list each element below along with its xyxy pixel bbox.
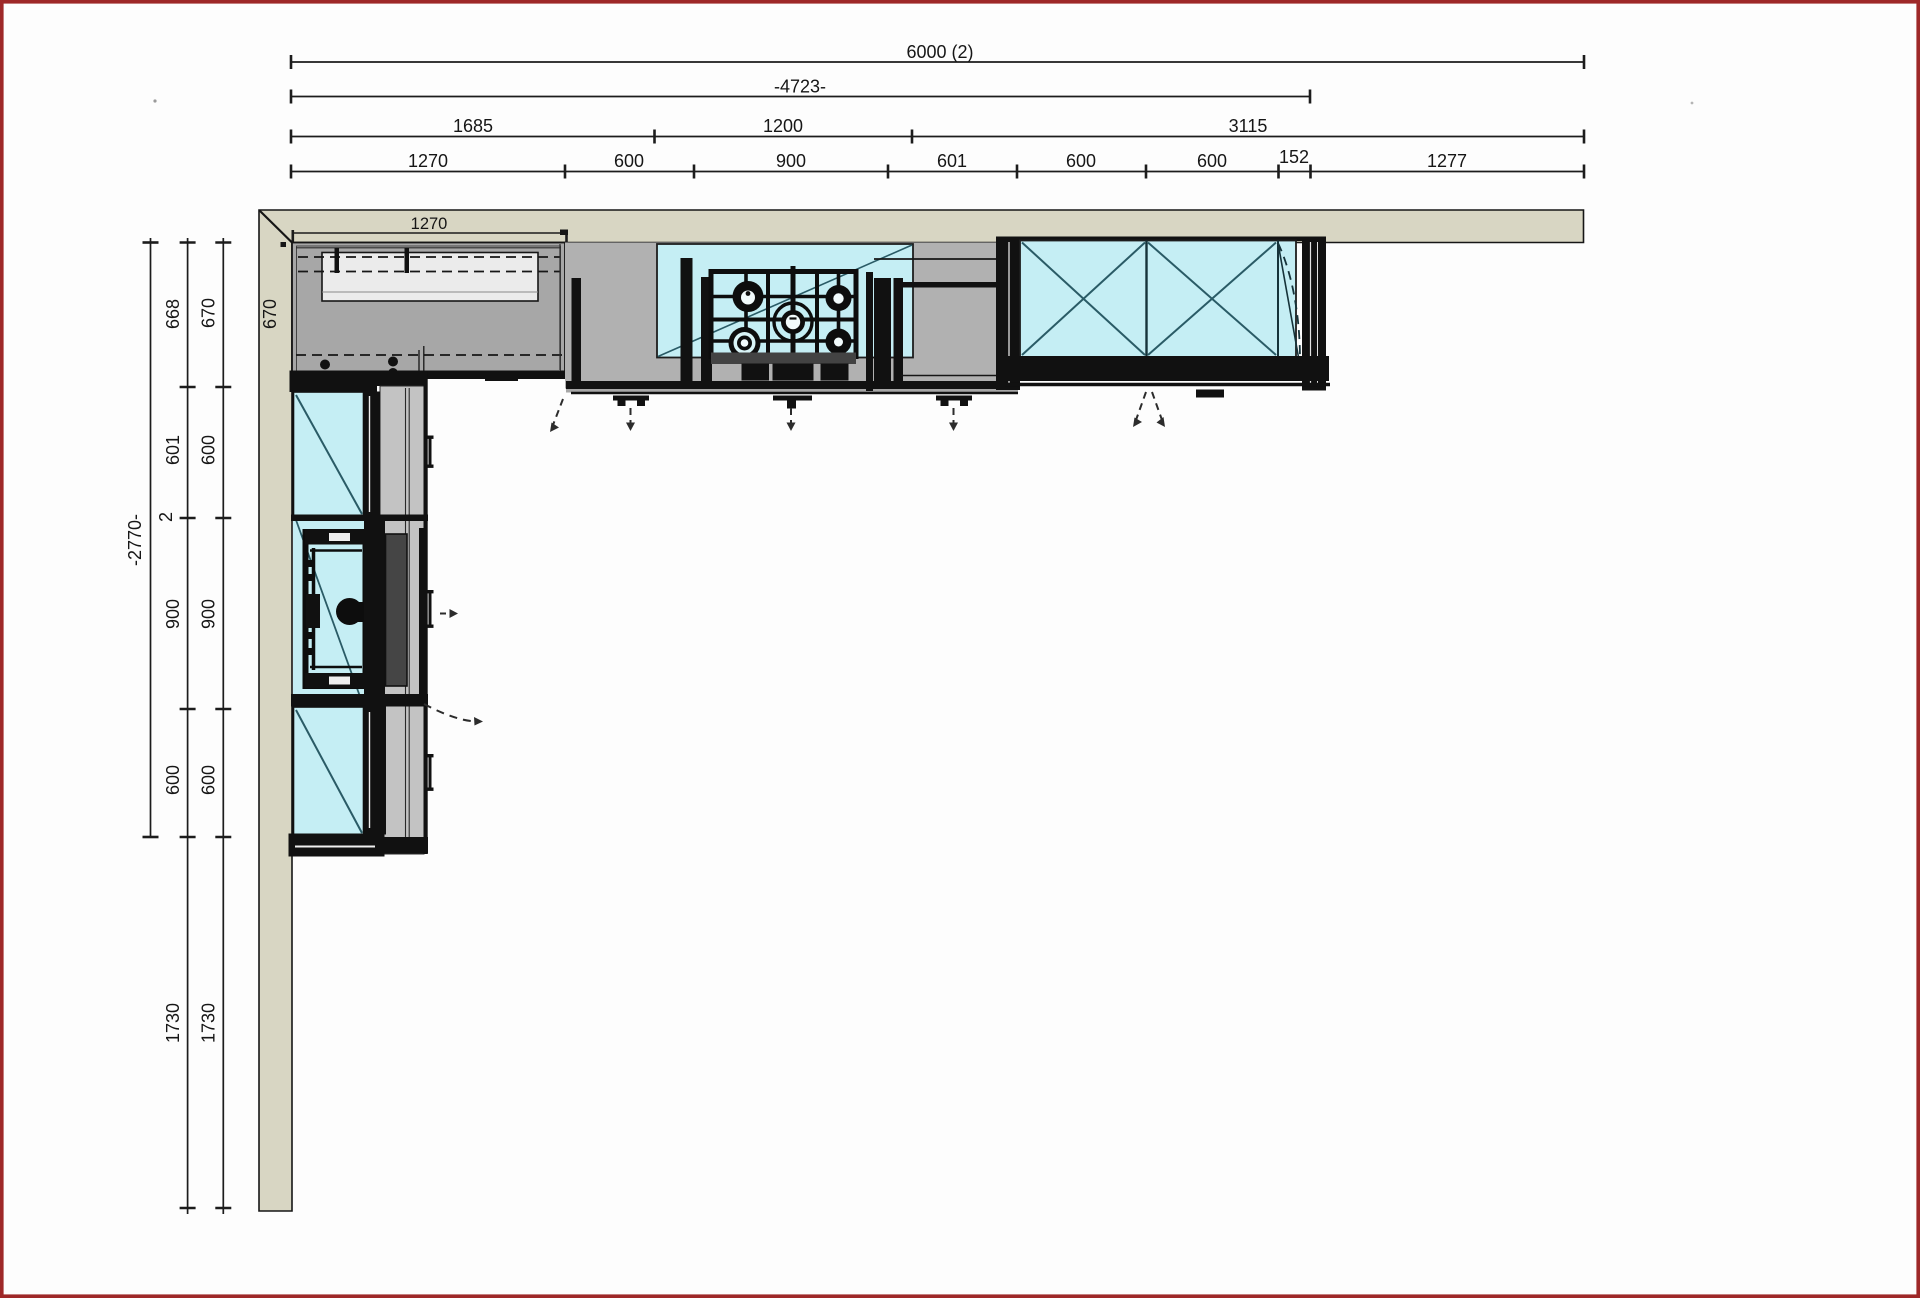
svg-text:1270: 1270 [408,151,448,171]
svg-text:152: 152 [1279,147,1309,167]
svg-text:600: 600 [163,765,183,795]
svg-text:670: 670 [260,299,280,329]
svg-text:1730: 1730 [199,1003,219,1043]
svg-text:-4723-: -4723- [774,77,826,97]
svg-text:-2770-: -2770- [125,514,145,566]
svg-text:600: 600 [614,151,644,171]
svg-text:900: 900 [776,151,806,171]
svg-text:600: 600 [1066,151,1096,171]
svg-text:3115: 3115 [1229,116,1268,136]
svg-text:601: 601 [163,435,183,465]
svg-text:601: 601 [937,151,967,171]
svg-text:1200: 1200 [763,116,803,136]
svg-text:668: 668 [163,299,183,329]
svg-text:2: 2 [156,512,176,522]
svg-text:900: 900 [199,599,219,629]
svg-text:6000 (2): 6000 (2) [906,42,973,62]
svg-text:1277: 1277 [1427,151,1467,171]
svg-text:600: 600 [199,765,219,795]
svg-text:1730: 1730 [163,1003,183,1043]
svg-text:600: 600 [199,435,219,465]
svg-text:1685: 1685 [453,116,493,136]
svg-text:1270: 1270 [411,215,448,233]
svg-text:670: 670 [199,298,219,328]
svg-text:600: 600 [1197,151,1227,171]
svg-text:900: 900 [163,599,183,629]
